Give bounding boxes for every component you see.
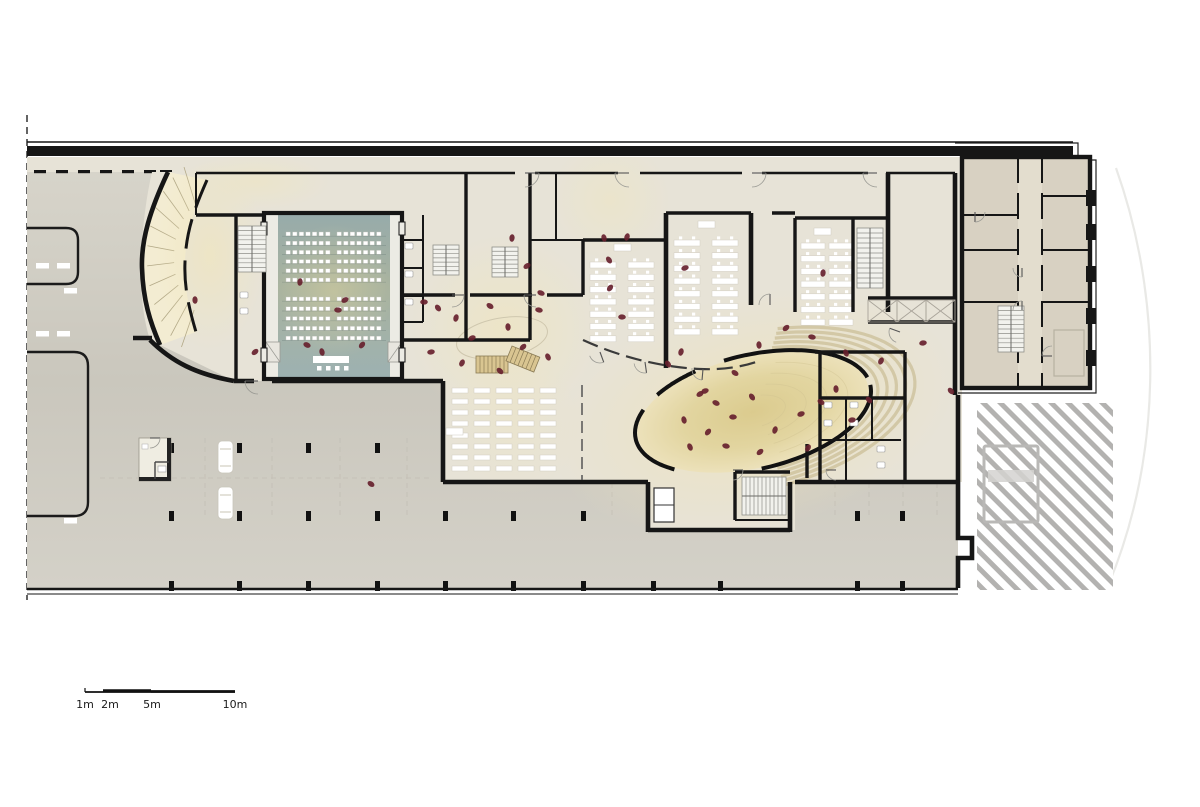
auditorium-seat (363, 241, 367, 245)
chair (730, 313, 733, 316)
auditorium-seat (286, 307, 290, 311)
desk (518, 421, 534, 426)
teacher-desk (614, 244, 631, 251)
desk (590, 262, 616, 268)
desk (712, 240, 738, 246)
desk (518, 410, 534, 415)
auditorium-seat (350, 326, 354, 330)
desk (540, 388, 556, 393)
desk (518, 388, 534, 393)
facade-pilaster (1086, 190, 1096, 206)
auditorium-seat (357, 250, 361, 254)
desk (518, 433, 534, 438)
toilet-fixture (824, 420, 832, 426)
structural-column (237, 443, 242, 453)
auditorium-seat (363, 326, 367, 330)
auditorium-seat (357, 326, 361, 330)
auditorium-seat (326, 250, 330, 254)
toilet-fixture (158, 466, 166, 472)
chair (834, 303, 837, 306)
door-gap (399, 222, 405, 235)
hatched-plot-bar (988, 470, 1034, 482)
auditorium-seat (326, 307, 330, 311)
auditorium-seat (357, 241, 361, 245)
corridor-glow (550, 140, 670, 260)
auditorium-seat (344, 232, 348, 236)
auditorium-seat (306, 336, 310, 340)
desk (540, 466, 556, 471)
desk (712, 329, 738, 335)
structural-column (443, 511, 448, 521)
structural-column (375, 443, 380, 453)
auditorium-seat (293, 317, 297, 321)
auditorium-seat (344, 278, 348, 282)
chair (692, 275, 695, 278)
chair (692, 236, 695, 239)
scale-label-10m: 10m (223, 698, 248, 711)
chair (817, 265, 820, 268)
chair (633, 283, 636, 286)
auditorium-seat (293, 260, 297, 264)
structural-column (237, 511, 242, 521)
desk (590, 324, 616, 330)
desk (829, 281, 853, 287)
person-figure (420, 299, 428, 304)
auditorium-seat (377, 269, 381, 273)
desk (712, 278, 738, 284)
auditorium-seat (350, 336, 354, 340)
auditorium-seat (344, 241, 348, 245)
chair (595, 258, 598, 261)
auditorium-seat (312, 317, 316, 321)
auditorium-seat (326, 326, 330, 330)
auditorium-seat (306, 250, 310, 254)
auditorium-seat (319, 307, 323, 311)
auditorium-seat (377, 278, 381, 282)
desk (540, 421, 556, 426)
desk (518, 399, 534, 404)
staircase (238, 226, 266, 272)
chair (692, 249, 695, 252)
east-wing (955, 143, 1096, 393)
chair (646, 332, 649, 335)
auditorium-seat (363, 278, 367, 282)
auditorium-seat (370, 278, 374, 282)
chair (692, 313, 695, 316)
auditorium-seat (312, 260, 316, 264)
toilet-fixture (877, 462, 885, 468)
chair (595, 283, 598, 286)
parking-stall-mark (36, 331, 49, 337)
site-boundary-arc (1108, 168, 1150, 586)
elevator (654, 488, 674, 522)
auditorium-seat (357, 260, 361, 264)
chair (845, 239, 848, 242)
auditorium-seat (286, 250, 290, 254)
chair (633, 258, 636, 261)
chair (679, 300, 682, 303)
desk (496, 399, 512, 404)
auditorium-seat (344, 260, 348, 264)
teacher-desk (814, 228, 831, 235)
chair (595, 308, 598, 311)
chair (646, 271, 649, 274)
auditorium-seat (370, 307, 374, 311)
auditorium-seat (312, 241, 316, 245)
desk (540, 410, 556, 415)
desk (474, 399, 490, 404)
chair (646, 308, 649, 311)
auditorium-seat (370, 250, 374, 254)
floor-plan-drawing: 1m 2m 5m 10m (0, 0, 1200, 807)
facade-pilaster (1086, 224, 1096, 240)
auditorium (266, 215, 402, 377)
chair (730, 287, 733, 290)
chair (730, 325, 733, 328)
desk (712, 304, 738, 310)
auditorium-seat (337, 336, 341, 340)
staircase (998, 306, 1024, 352)
stage-chair (335, 366, 340, 371)
chair (845, 303, 848, 306)
chair (806, 252, 809, 255)
desk (712, 253, 738, 259)
chair (834, 265, 837, 268)
chair (834, 316, 837, 319)
chair (679, 262, 682, 265)
auditorium-seat (286, 269, 290, 273)
auditorium-seat (357, 232, 361, 236)
auditorium-seat (319, 241, 323, 245)
desk (452, 466, 468, 471)
toilet-fixture (877, 446, 885, 452)
desk (474, 455, 490, 460)
chair (717, 262, 720, 265)
chair (633, 295, 636, 298)
auditorium-seat (293, 278, 297, 282)
chair (834, 239, 837, 242)
auditorium-seat (377, 336, 381, 340)
chair (595, 295, 598, 298)
chair (845, 265, 848, 268)
stage-table (313, 356, 349, 363)
auditorium-seat (319, 317, 323, 321)
toilet-fixture (405, 271, 413, 277)
chair (717, 287, 720, 290)
auditorium-seat (286, 297, 290, 301)
desk (674, 329, 700, 335)
chair (608, 295, 611, 298)
hatched-area (977, 403, 1113, 590)
door-gap (261, 348, 267, 362)
auditorium-seat (337, 260, 341, 264)
desk (628, 311, 654, 317)
auditorium-seat (306, 241, 310, 245)
chair (717, 325, 720, 328)
chair (646, 258, 649, 261)
auditorium-seat (363, 317, 367, 321)
auditorium-seat (286, 260, 290, 264)
auditorium-seat (363, 269, 367, 273)
desk (712, 316, 738, 322)
auditorium-seat (350, 232, 354, 236)
toilet-fixture (240, 292, 248, 298)
chair (608, 308, 611, 311)
chair (817, 303, 820, 306)
dropoff-glow (180, 154, 330, 210)
structural-column (169, 511, 174, 521)
structural-column (375, 511, 380, 521)
auditorium-seat (337, 297, 341, 301)
desk (496, 388, 512, 393)
desk (628, 299, 654, 305)
auditorium-seat (363, 260, 367, 264)
structural-column (855, 511, 860, 521)
desk (474, 444, 490, 449)
car-body (218, 441, 233, 473)
structural-column (511, 511, 516, 521)
south-boundary (27, 589, 958, 594)
auditorium-seat (337, 241, 341, 245)
desk (712, 291, 738, 297)
chair (845, 290, 848, 293)
auditorium-seat (293, 232, 297, 236)
desk (801, 307, 825, 313)
auditorium-seat (286, 326, 290, 330)
structural-column (581, 511, 586, 521)
chair (633, 308, 636, 311)
staircase (742, 477, 786, 515)
auditorium-seat (357, 317, 361, 321)
desk (496, 433, 512, 438)
auditorium-seat (363, 297, 367, 301)
structural-column (306, 443, 311, 453)
chair (595, 271, 598, 274)
desk (496, 421, 512, 426)
desk (829, 256, 853, 262)
desk (452, 388, 468, 393)
desk (540, 444, 556, 449)
auditorium-seat (377, 297, 381, 301)
parking-stall-mark (64, 288, 77, 294)
chair (717, 236, 720, 239)
auditorium-seat (299, 307, 303, 311)
auditorium-seat (357, 297, 361, 301)
auditorium-seat (306, 297, 310, 301)
chair (717, 313, 720, 316)
desk (628, 287, 654, 293)
chair (608, 271, 611, 274)
auditorium-seat (350, 297, 354, 301)
scale-bar: 1m 2m 5m 10m (76, 688, 247, 711)
parking-stall-mark (64, 518, 77, 524)
desk (474, 410, 490, 415)
auditorium-seat (357, 307, 361, 311)
auditorium-seat (370, 241, 374, 245)
chair (692, 325, 695, 328)
desk (674, 291, 700, 297)
chair (717, 275, 720, 278)
garage-utility-room (139, 438, 171, 481)
auditorium-seat (293, 297, 297, 301)
chair (595, 332, 598, 335)
auditorium-seat (350, 317, 354, 321)
auditorium-seat (350, 307, 354, 311)
chair (730, 249, 733, 252)
desk (496, 466, 512, 471)
stage-chair (317, 366, 322, 371)
chair (608, 320, 611, 323)
auditorium-seat (337, 232, 341, 236)
parking-stall-mark (57, 263, 70, 269)
auditorium-seat (377, 317, 381, 321)
chair (679, 249, 682, 252)
auditorium-seat (326, 297, 330, 301)
auditorium-seat (370, 317, 374, 321)
desk (452, 399, 468, 404)
auditorium-seat (293, 269, 297, 273)
desk (452, 421, 468, 426)
desk (540, 433, 556, 438)
auditorium-seat (306, 269, 310, 273)
staircase (476, 356, 508, 373)
desk (474, 421, 490, 426)
desk (590, 274, 616, 280)
auditorium-seat (377, 232, 381, 236)
auditorium-seat (337, 317, 341, 321)
desk (474, 388, 490, 393)
auditorium-seat (312, 269, 316, 273)
floor-plan-page: 1m 2m 5m 10m (0, 0, 1200, 807)
parking-stall-mark (57, 331, 70, 337)
chair (845, 252, 848, 255)
chair (845, 278, 848, 281)
desk (712, 265, 738, 271)
stage-chair (344, 366, 349, 371)
chair (679, 313, 682, 316)
auditorium-seat (326, 336, 330, 340)
auditorium-seat (293, 336, 297, 340)
desk (518, 466, 534, 471)
desk (496, 444, 512, 449)
desk (452, 444, 468, 449)
auditorium-seat (350, 260, 354, 264)
chair (633, 271, 636, 274)
desk (474, 433, 490, 438)
staircase (492, 247, 518, 277)
chair (817, 290, 820, 293)
desk (518, 455, 534, 460)
auditorium-seat (286, 336, 290, 340)
auditorium-seat (337, 326, 341, 330)
desk (674, 240, 700, 246)
auditorium-seat (377, 250, 381, 254)
auditorium-seat (319, 278, 323, 282)
chair (834, 290, 837, 293)
desk (628, 336, 654, 342)
chair (806, 316, 809, 319)
auditorium-seat (293, 250, 297, 254)
chair (692, 262, 695, 265)
auditorium-seat (319, 232, 323, 236)
chair (817, 278, 820, 281)
auditorium-seat (344, 307, 348, 311)
auditorium-seat (286, 241, 290, 245)
chair (817, 252, 820, 255)
auditorium-seat (350, 278, 354, 282)
auditorium-seat (306, 260, 310, 264)
auditorium-seat (363, 336, 367, 340)
scale-label-1m: 1m (76, 698, 94, 711)
auditorium-seat (344, 269, 348, 273)
toilet-fixture (824, 402, 832, 408)
desk (590, 311, 616, 317)
chair (679, 287, 682, 290)
toilet-fixture (405, 299, 413, 305)
auditorium-seat (370, 269, 374, 273)
auditorium-seat (326, 260, 330, 264)
chair (834, 252, 837, 255)
chair (806, 303, 809, 306)
auditorium-seat (363, 232, 367, 236)
auditorium-seat (357, 269, 361, 273)
hatched-plot (977, 403, 1113, 590)
facade-pilaster (1086, 350, 1096, 366)
desk (628, 324, 654, 330)
chair (834, 278, 837, 281)
chair (845, 316, 848, 319)
desk (829, 307, 853, 313)
sidewalk-strip (27, 157, 962, 172)
chair (817, 316, 820, 319)
chair (633, 320, 636, 323)
staircase (433, 245, 459, 275)
auditorium-seat (357, 336, 361, 340)
chair (646, 283, 649, 286)
chair (717, 300, 720, 303)
auditorium-seat (286, 317, 290, 321)
auditorium-seat (299, 269, 303, 273)
auditorium-seat (377, 307, 381, 311)
desk (674, 278, 700, 284)
auditorium-seat (370, 336, 374, 340)
stage-chair (326, 366, 331, 371)
auditorium-seat (293, 326, 297, 330)
toilet-fixture (405, 243, 413, 249)
auditorium-seat (337, 278, 341, 282)
facade-pilaster (1086, 266, 1096, 282)
desk (674, 304, 700, 310)
auditorium-seat (319, 269, 323, 273)
auditorium-seat (377, 241, 381, 245)
auditorium-seat (312, 232, 316, 236)
chair (730, 300, 733, 303)
chair (806, 278, 809, 281)
desk (628, 274, 654, 280)
auditorium-seat (326, 232, 330, 236)
auditorium-seat (319, 297, 323, 301)
auditorium-seat (350, 250, 354, 254)
auditorium-seat (326, 317, 330, 321)
desk (540, 399, 556, 404)
chair (730, 262, 733, 265)
desk (829, 268, 853, 274)
auditorium-seat (363, 307, 367, 311)
chair (633, 332, 636, 335)
auditorium-seat (293, 241, 297, 245)
auditorium-seat (306, 317, 310, 321)
chair (730, 275, 733, 278)
